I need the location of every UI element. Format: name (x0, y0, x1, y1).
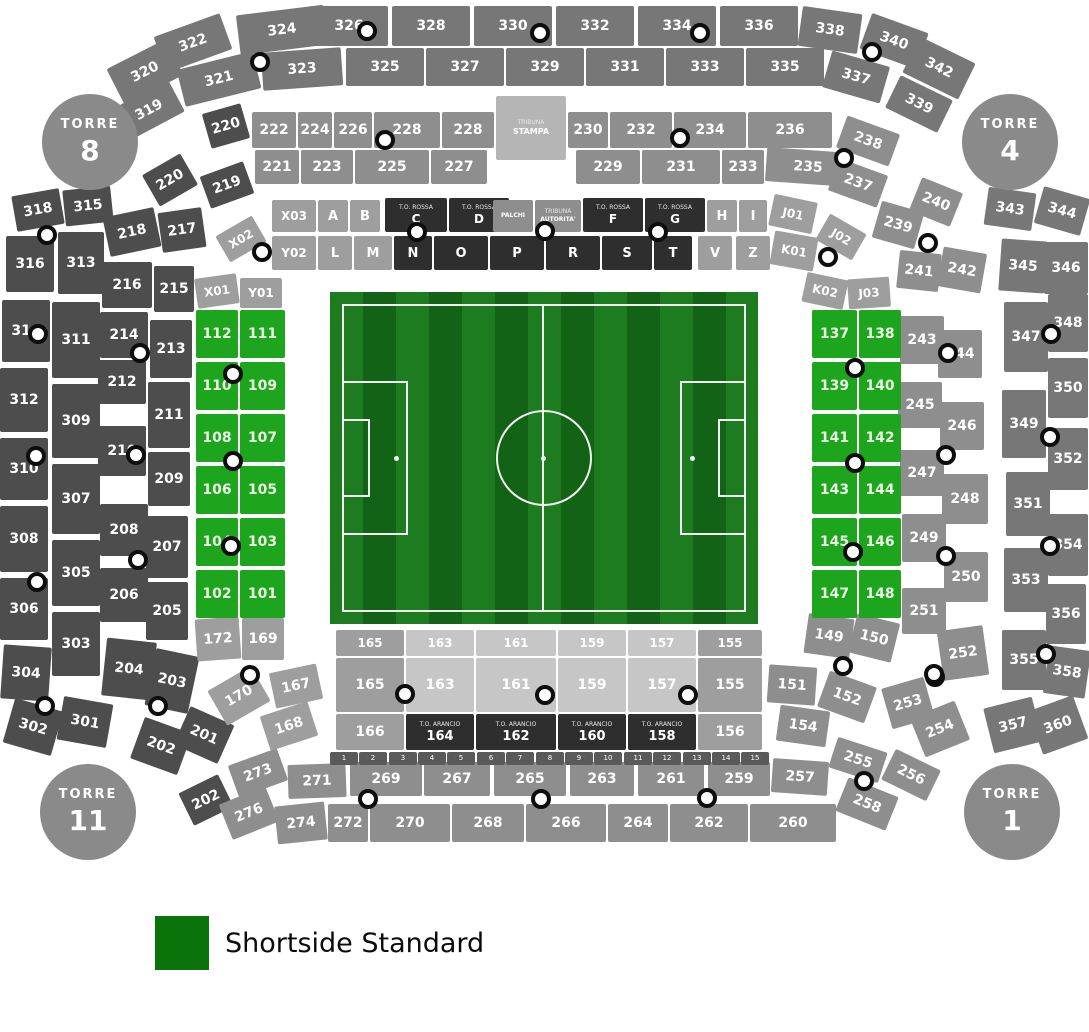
section-333[interactable]: 333 (666, 48, 744, 86)
section-label: 202 (145, 734, 177, 757)
section-r[interactable]: R (546, 236, 600, 270)
section-107[interactable]: 107 (240, 414, 285, 462)
section-row-strip-4[interactable]: 4 (418, 752, 446, 765)
section-label: 106 (202, 483, 231, 497)
section-label: Z (748, 247, 757, 260)
section-111[interactable]: 111 (240, 310, 285, 358)
section-label: 324 (267, 21, 298, 38)
section-260[interactable]: 260 (750, 804, 836, 842)
section-346[interactable]: 346 (1044, 242, 1088, 294)
section-206[interactable]: 206 (100, 568, 148, 622)
section-b[interactable]: B (350, 200, 380, 232)
section-label: 325 (370, 60, 399, 74)
section-label: 236 (775, 123, 804, 137)
gate-marker-icon (938, 343, 958, 363)
section-label: R (568, 247, 578, 260)
section-row-strip-15[interactable]: 15 (741, 752, 769, 765)
section-label: 1 (342, 755, 346, 762)
section-label: 360 (1042, 713, 1074, 736)
section-label: 321 (203, 69, 235, 90)
section-label: 248 (950, 492, 979, 506)
section-212[interactable]: 212 (98, 360, 146, 404)
section-307[interactable]: 307 (52, 464, 100, 534)
section-j01[interactable]: J01 (768, 194, 818, 234)
section-label: 204 (114, 661, 145, 678)
section-225[interactable]: 225 (355, 150, 429, 184)
section-label: 167 (280, 676, 312, 696)
section-149[interactable]: 149 (803, 613, 854, 659)
section-label: 146 (865, 535, 894, 549)
section-tribuna-arancio-162[interactable]: T.O. ARANCIO162 (476, 714, 556, 750)
section-x01[interactable]: X01 (194, 273, 240, 309)
section-356[interactable]: 356 (1046, 584, 1086, 644)
section-label: 172 (203, 631, 233, 647)
section-row-strip-2[interactable]: 2 (359, 752, 387, 765)
section-242[interactable]: 242 (937, 246, 987, 293)
gate-marker-icon (697, 788, 717, 808)
section-row-strip-13[interactable]: 13 (683, 752, 711, 765)
section-313[interactable]: 313 (58, 232, 104, 294)
section-109[interactable]: 109 (240, 362, 285, 410)
section-label: K02 (811, 282, 839, 299)
section-label: 147 (820, 587, 849, 601)
section-167[interactable]: 167 (269, 663, 323, 708)
section-257[interactable]: 257 (771, 758, 829, 796)
section-x03[interactable]: X03 (272, 200, 316, 232)
section-label: 331 (610, 60, 639, 74)
section-327[interactable]: 327 (426, 48, 504, 86)
section-label: 157 (649, 637, 674, 649)
section-label: 337 (840, 66, 872, 88)
section-230[interactable]: 230 (568, 112, 608, 148)
section-palchi[interactable]: PALCHI (493, 200, 533, 232)
section-label: 156 (715, 725, 744, 739)
tower-label: TORRE (59, 787, 118, 802)
section-label: 159 (577, 678, 606, 692)
section-label: 322 (177, 31, 209, 54)
section-label: 338 (815, 21, 846, 39)
section-label: 220 (210, 115, 242, 137)
section-148[interactable]: 148 (859, 570, 901, 618)
section-106[interactable]: 106 (196, 466, 238, 514)
section-168[interactable]: 168 (260, 701, 319, 751)
section-row-strip-11[interactable]: 11 (624, 752, 652, 765)
section-label: 269 (371, 772, 400, 786)
section-329[interactable]: 329 (506, 48, 584, 86)
section-label: 13 (693, 755, 702, 762)
section-label: 328 (416, 19, 445, 33)
section-label: 224 (300, 123, 329, 137)
section-label: 101 (248, 587, 277, 601)
section-tribuna-onore-f[interactable]: T.O. ROSSAF (583, 198, 643, 232)
section-102[interactable]: 102 (196, 570, 238, 618)
section-label: 304 (11, 665, 41, 681)
section-350[interactable]: 350 (1048, 358, 1088, 418)
section-335[interactable]: 335 (746, 48, 824, 86)
section-label: 253 (892, 692, 924, 714)
section-252[interactable]: 252 (937, 625, 990, 681)
section-259[interactable]: 259 (708, 762, 770, 796)
section-147[interactable]: 147 (812, 570, 857, 618)
section-351[interactable]: 351 (1006, 472, 1050, 536)
section-label: N (408, 247, 419, 260)
section-263[interactable]: 263 (570, 762, 634, 796)
section-233[interactable]: 233 (722, 150, 764, 184)
section-label: 10 (604, 755, 613, 762)
section-154[interactable]: 154 (776, 705, 831, 748)
section-328[interactable]: 328 (392, 6, 470, 46)
section-label: 217 (167, 221, 198, 239)
section-138[interactable]: 138 (859, 310, 901, 358)
section-label: 9 (577, 755, 581, 762)
section-k02[interactable]: K02 (801, 272, 848, 310)
section-row-strip-1[interactable]: 1 (330, 752, 358, 765)
section-label: 228 (392, 123, 421, 137)
section-165[interactable]: 165 (336, 630, 404, 656)
section-161[interactable]: 161 (476, 630, 556, 656)
section-246[interactable]: 246 (940, 402, 984, 450)
gate-marker-icon (678, 685, 698, 705)
section-163[interactable]: 163 (406, 658, 474, 712)
section-label: 4 (430, 755, 434, 762)
section-label: 163 (427, 637, 452, 649)
section-326[interactable]: 326 (310, 6, 388, 46)
section-k01[interactable]: K01 (769, 230, 818, 271)
section-label: 143 (820, 483, 849, 497)
section-row-strip-12[interactable]: 12 (653, 752, 681, 765)
gate-marker-icon (130, 343, 150, 363)
section-label: 346 (1051, 261, 1080, 275)
section-tribuna-stampa[interactable]: TRIBUNASTAMPA (496, 96, 566, 160)
gate-marker-icon (223, 364, 243, 384)
section-137[interactable]: 137 (812, 310, 857, 358)
section-label: 155 (715, 678, 744, 692)
gate-marker-icon (924, 664, 944, 684)
section-101[interactable]: 101 (240, 570, 285, 618)
section-345[interactable]: 345 (998, 238, 1048, 293)
section-232[interactable]: 232 (610, 112, 672, 148)
section-label: 320 (129, 59, 161, 85)
section-146[interactable]: 146 (859, 518, 901, 566)
section-360[interactable]: 360 (1028, 695, 1089, 755)
section-271[interactable]: 271 (287, 763, 346, 799)
section-169[interactable]: 169 (242, 618, 284, 660)
section-268[interactable]: 268 (452, 804, 524, 842)
section-144[interactable]: 144 (859, 466, 901, 514)
section-label: P (512, 247, 522, 260)
section-216[interactable]: 216 (102, 262, 152, 308)
section-label: 335 (770, 60, 799, 74)
stadium-map: Shortside Standard 322324326328330332334… (0, 0, 1089, 1032)
section-301[interactable]: 301 (57, 696, 114, 748)
section-325[interactable]: 325 (346, 48, 424, 86)
section-248[interactable]: 248 (942, 474, 988, 524)
section-label: 302 (17, 716, 49, 738)
section-343[interactable]: 343 (984, 187, 1037, 231)
section-336[interactable]: 336 (720, 6, 798, 46)
section-349[interactable]: 349 (1002, 390, 1046, 458)
section-label: 303 (61, 637, 90, 651)
section-label: 271 (302, 773, 332, 788)
gate-marker-icon (1040, 427, 1060, 447)
section-label: 206 (109, 588, 138, 602)
section-155[interactable]: 155 (698, 630, 762, 656)
section-159[interactable]: 159 (558, 630, 626, 656)
section-332[interactable]: 332 (556, 6, 634, 46)
section-236[interactable]: 236 (748, 112, 832, 148)
section-j03[interactable]: J03 (847, 277, 891, 310)
section-112[interactable]: 112 (196, 310, 238, 358)
section-308[interactable]: 308 (0, 506, 48, 572)
section-318[interactable]: 318 (11, 188, 65, 232)
section-label: 5 (459, 755, 463, 762)
section-217[interactable]: 217 (157, 207, 206, 253)
section-226[interactable]: 226 (334, 112, 372, 148)
section-224[interactable]: 224 (298, 112, 332, 148)
section-303[interactable]: 303 (52, 612, 100, 676)
section-z[interactable]: Z (736, 236, 770, 270)
section-tribuna-arancio-164[interactable]: T.O. ARANCIO164 (406, 714, 474, 750)
section-label: 259 (724, 772, 753, 786)
section-344[interactable]: 344 (1034, 186, 1089, 236)
gate-marker-icon (918, 233, 938, 253)
section-245[interactable]: 245 (898, 382, 942, 428)
section-150[interactable]: 150 (848, 613, 900, 662)
section-311[interactable]: 311 (52, 302, 100, 378)
section-label: 263 (587, 772, 616, 786)
section-label: M (367, 247, 380, 260)
section-228[interactable]: 228 (442, 112, 494, 148)
section-row-strip-6[interactable]: 6 (477, 752, 505, 765)
section-label: 211 (154, 408, 183, 422)
section-label: 111 (248, 327, 277, 341)
section-166[interactable]: 166 (336, 714, 404, 750)
section-tribuna-arancio-160[interactable]: T.O. ARANCIO160 (558, 714, 626, 750)
section-label: 163 (425, 678, 454, 692)
section-270[interactable]: 270 (370, 804, 450, 842)
section-label: 160 (578, 730, 605, 743)
section-143[interactable]: 143 (812, 466, 857, 514)
section-label: 243 (907, 333, 936, 347)
section-label: 235 (793, 159, 823, 175)
section-row-strip-8[interactable]: 8 (536, 752, 564, 765)
section-label: 262 (694, 816, 723, 830)
section-211[interactable]: 211 (148, 382, 190, 448)
section-label: 358 (1052, 663, 1083, 681)
section-165[interactable]: 165 (336, 658, 404, 712)
gate-marker-icon (845, 453, 865, 473)
section-o[interactable]: O (434, 236, 488, 270)
section-tribuna-arancio-158[interactable]: T.O. ARANCIO158 (628, 714, 696, 750)
section-y01[interactable]: Y01 (240, 278, 282, 308)
section-a[interactable]: A (318, 200, 348, 232)
gate-marker-icon (407, 222, 427, 242)
section-y02[interactable]: Y02 (272, 236, 316, 270)
section-353[interactable]: 353 (1004, 548, 1048, 612)
section-label: 105 (248, 483, 277, 497)
section-label: 201 (188, 723, 220, 748)
section-label: STAMPA (513, 128, 549, 136)
section-312[interactable]: 312 (0, 368, 48, 432)
section-159[interactable]: 159 (558, 658, 626, 712)
section-208[interactable]: 208 (100, 504, 148, 556)
tower-number: 11 (69, 804, 108, 837)
section-p[interactable]: P (490, 236, 544, 270)
gate-marker-icon (854, 771, 874, 791)
section-209[interactable]: 209 (148, 452, 190, 506)
section-h[interactable]: H (707, 200, 737, 232)
section-sublabel: TRIBUNA (518, 120, 545, 126)
section-305[interactable]: 305 (52, 540, 100, 606)
section-267[interactable]: 267 (424, 762, 490, 796)
section-222[interactable]: 222 (252, 112, 296, 148)
section-row-strip-3[interactable]: 3 (389, 752, 417, 765)
section-label: 215 (159, 282, 188, 296)
section-label: K01 (780, 243, 808, 259)
section-label: 301 (69, 713, 100, 732)
section-140[interactable]: 140 (859, 362, 901, 410)
section-207[interactable]: 207 (146, 516, 188, 578)
section-251[interactable]: 251 (902, 588, 946, 634)
section-label: 260 (778, 816, 807, 830)
section-label: H (717, 210, 728, 223)
section-row-strip-7[interactable]: 7 (506, 752, 534, 765)
penalty-spot-left (394, 456, 399, 461)
section-label: B (360, 210, 370, 223)
section-label: 255 (842, 749, 874, 771)
tower-1: TORRE1 (964, 764, 1060, 860)
section-155[interactable]: 155 (698, 658, 762, 712)
legend: Shortside Standard (155, 916, 484, 970)
section-label: 336 (744, 19, 773, 33)
section-m[interactable]: M (354, 236, 392, 270)
section-label: 329 (530, 60, 559, 74)
section-157[interactable]: 157 (628, 630, 696, 656)
section-231[interactable]: 231 (642, 150, 720, 184)
section-label: 240 (920, 190, 952, 214)
section-337[interactable]: 337 (822, 50, 890, 103)
section-156[interactable]: 156 (698, 714, 762, 750)
section-272[interactable]: 272 (328, 804, 368, 842)
goal-area-right (718, 419, 746, 497)
section-label: 148 (865, 587, 894, 601)
section-215[interactable]: 215 (154, 266, 194, 312)
section-label: 202 (190, 787, 222, 812)
section-label: 8 (548, 755, 552, 762)
section-label: 351 (1013, 497, 1042, 511)
gate-marker-icon (223, 451, 243, 471)
section-331[interactable]: 331 (586, 48, 664, 86)
section-105[interactable]: 105 (240, 466, 285, 514)
gate-marker-icon (936, 546, 956, 566)
section-label: 102 (202, 587, 231, 601)
section-219[interactable]: 219 (200, 161, 255, 209)
section-304[interactable]: 304 (0, 644, 52, 701)
section-label: D (474, 213, 484, 225)
section-261[interactable]: 261 (638, 762, 704, 796)
section-row-strip-5[interactable]: 5 (447, 752, 475, 765)
gate-marker-icon (834, 148, 854, 168)
gate-marker-icon (28, 324, 48, 344)
section-label: J02 (829, 227, 853, 248)
section-label: 221 (262, 160, 291, 174)
section-309[interactable]: 309 (52, 384, 100, 458)
section-label: 268 (473, 816, 502, 830)
tower-8: TORRE8 (42, 94, 138, 190)
section-label: I (751, 210, 756, 223)
section-221[interactable]: 221 (255, 150, 299, 184)
section-227[interactable]: 227 (431, 150, 487, 184)
section-label: 228 (453, 123, 482, 137)
section-241[interactable]: 241 (896, 250, 942, 292)
section-label: 355 (1009, 653, 1038, 667)
section-row-strip-14[interactable]: 14 (712, 752, 740, 765)
section-229[interactable]: 229 (576, 150, 640, 184)
section-label: 234 (695, 123, 724, 137)
section-205[interactable]: 205 (146, 582, 188, 640)
section-220[interactable]: 220 (142, 153, 198, 206)
gate-marker-icon (531, 789, 551, 809)
section-163[interactable]: 163 (406, 630, 474, 656)
section-265[interactable]: 265 (494, 762, 566, 796)
section-v[interactable]: V (698, 236, 732, 270)
section-274[interactable]: 274 (274, 801, 328, 844)
gate-marker-icon (250, 52, 270, 72)
section-264[interactable]: 264 (608, 804, 668, 842)
section-223[interactable]: 223 (301, 150, 353, 184)
section-label: 345 (1008, 258, 1038, 274)
section-s[interactable]: S (602, 236, 652, 270)
section-323[interactable]: 323 (261, 47, 343, 90)
section-label: 251 (909, 604, 938, 618)
section-label: 151 (777, 677, 807, 693)
section-266[interactable]: 266 (526, 804, 606, 842)
section-label: X02 (227, 227, 255, 250)
section-row-strip-10[interactable]: 10 (594, 752, 622, 765)
section-label: 205 (152, 604, 181, 618)
section-i[interactable]: I (739, 200, 767, 232)
section-label: V (710, 247, 720, 260)
section-l[interactable]: L (318, 236, 352, 270)
gate-marker-icon (358, 789, 378, 809)
section-142[interactable]: 142 (859, 414, 901, 462)
section-213[interactable]: 213 (150, 320, 192, 378)
gate-marker-icon (1036, 644, 1056, 664)
section-262[interactable]: 262 (670, 804, 748, 842)
section-label: 272 (333, 816, 362, 830)
section-label: 308 (9, 532, 38, 546)
section-338[interactable]: 338 (798, 6, 863, 54)
section-label: 107 (248, 431, 277, 445)
gate-marker-icon (535, 221, 555, 241)
tower-label: TORRE (983, 787, 1042, 802)
section-label: 311 (61, 333, 90, 347)
section-label: 137 (820, 327, 849, 341)
gate-marker-icon (35, 696, 55, 716)
section-172[interactable]: 172 (195, 617, 242, 662)
gate-marker-icon (148, 696, 168, 716)
section-103[interactable]: 103 (240, 518, 285, 566)
section-151[interactable]: 151 (767, 664, 818, 705)
section-label: 333 (690, 60, 719, 74)
section-label: 254 (924, 717, 956, 741)
section-label: 339 (903, 91, 935, 116)
section-label: 357 (997, 715, 1029, 736)
section-220[interactable]: 220 (202, 103, 250, 149)
section-label: Y02 (281, 247, 306, 259)
section-row-strip-9[interactable]: 9 (565, 752, 593, 765)
section-label: 232 (626, 123, 655, 137)
